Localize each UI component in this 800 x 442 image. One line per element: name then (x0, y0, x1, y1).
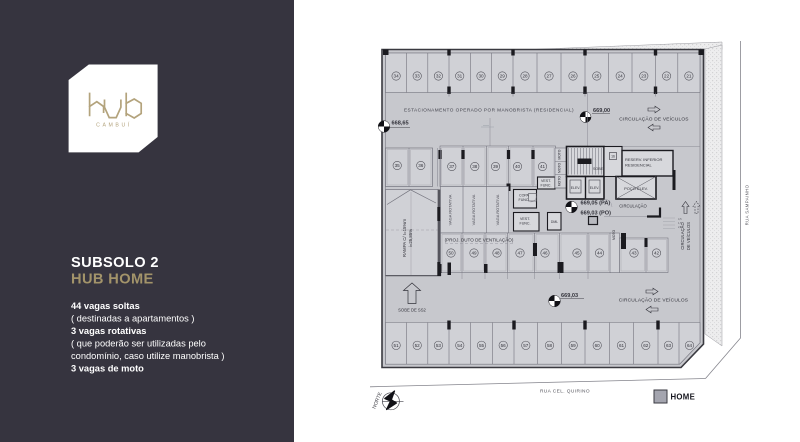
svg-text:55: 55 (479, 343, 485, 348)
svg-text:25: 25 (594, 74, 600, 79)
svg-text:RUA SAMPAINHO: RUA SAMPAINHO (745, 184, 750, 225)
svg-text:21: 21 (686, 74, 692, 79)
svg-text:39: 39 (493, 164, 499, 169)
svg-text:DE VEÍCULOS: DE VEÍCULOS (686, 222, 691, 250)
svg-text:63: 63 (666, 343, 672, 348)
svg-text:43: 43 (631, 251, 637, 256)
svg-text:34: 34 (394, 74, 400, 79)
svg-text:35: 35 (395, 163, 401, 168)
svg-text:ELEV.: ELEV. (590, 186, 600, 190)
svg-text:47: 47 (517, 251, 523, 256)
svg-text:HUB HOME: HUB HOME (71, 272, 154, 288)
svg-text:45: 45 (574, 251, 580, 256)
svg-text:56: 56 (501, 343, 507, 348)
svg-text:669,03 (PO): 669,03 (PO) (581, 211, 612, 217)
svg-text:669,03: 669,03 (561, 293, 578, 299)
svg-text:60: 60 (595, 343, 601, 348)
svg-text:CIRCULAÇÃO: CIRCULAÇÃO (680, 222, 685, 250)
svg-text:62: 62 (643, 343, 649, 348)
svg-text:POÇO ELEV.: POÇO ELEV. (624, 186, 648, 191)
svg-text:29: 29 (500, 74, 506, 79)
svg-text:SOBE DE SS2: SOBE DE SS2 (398, 308, 426, 313)
svg-text:61: 61 (619, 343, 625, 348)
svg-text:668,65: 668,65 (392, 121, 409, 127)
svg-text:30: 30 (478, 74, 484, 79)
svg-text:23: 23 (641, 74, 647, 79)
svg-text:51: 51 (394, 343, 400, 348)
svg-text:26: 26 (570, 74, 576, 79)
svg-text:4,5: 4,5 (678, 217, 682, 221)
svg-text:(PROJ. DUTO DE VENTILAÇÃO): (PROJ. DUTO DE VENTILAÇÃO) (445, 237, 514, 243)
svg-text:SOBE: SOBE (593, 167, 604, 171)
svg-text:( que poderão ser utilizadas p: ( que poderão ser utilizadas pelo (71, 339, 206, 349)
svg-text:CIRCULAÇÃO DE VEÍCULOS: CIRCULAÇÃO DE VEÍCULOS (619, 297, 688, 304)
svg-text:VAGA ROTATIVA: VAGA ROTATIVA (471, 194, 476, 225)
svg-text:VAGA ROTATIVA: VAGA ROTATIVA (495, 194, 500, 225)
svg-text:27: 27 (546, 74, 552, 79)
svg-text:36: 36 (418, 163, 424, 168)
svg-text:46: 46 (542, 251, 548, 256)
svg-text:49: 49 (471, 251, 477, 256)
svg-text:52: 52 (415, 343, 421, 348)
svg-text:COPA: COPA (519, 194, 530, 198)
svg-text:RESIDENCIAL: RESIDENCIAL (625, 163, 652, 168)
svg-text:3 vagas de moto: 3 vagas de moto (71, 364, 144, 374)
svg-text:CIRCULAÇÃO: CIRCULAÇÃO (619, 204, 647, 209)
svg-text:FUNC.: FUNC. (520, 222, 531, 226)
svg-text:i=25,85%: i=25,85% (408, 229, 413, 248)
svg-text:RESERV. INFERIOR: RESERV. INFERIOR (625, 157, 662, 162)
svg-text:VAGA ROTATIVA: VAGA ROTATIVA (448, 194, 453, 225)
svg-text:50: 50 (448, 251, 454, 256)
svg-text:22: 22 (664, 74, 670, 79)
svg-text:54: 54 (457, 343, 463, 348)
svg-text:VEST.: VEST. (520, 217, 530, 221)
svg-text:40: 40 (515, 164, 521, 169)
svg-text:CIRCULAÇÃO DE VEÍCULOS: CIRCULAÇÃO DE VEÍCULOS (619, 116, 688, 123)
svg-text:ESTACIONAMENTO OPERADO POR MAN: ESTACIONAMENTO OPERADO POR MANOBRISTA (R… (404, 108, 574, 113)
svg-text:DML: DML (551, 220, 558, 224)
svg-text:42: 42 (654, 251, 660, 256)
svg-text:57: 57 (523, 343, 529, 348)
svg-text:33: 33 (415, 74, 421, 79)
svg-text:41: 41 (540, 164, 546, 169)
svg-text:669,00: 669,00 (593, 108, 610, 114)
svg-text:64: 64 (687, 343, 693, 348)
svg-text:44 vagas soltas: 44 vagas soltas (71, 301, 140, 311)
svg-text:58: 58 (547, 343, 553, 348)
svg-text:32: 32 (436, 74, 442, 79)
svg-text:condomínio, caso utilize manob: condomínio, caso utilize manobrista ) (71, 351, 224, 361)
svg-text:44: 44 (597, 251, 603, 256)
svg-text:SUBSOLO 2: SUBSOLO 2 (71, 255, 159, 271)
svg-text:FUNC.: FUNC. (519, 198, 530, 202)
svg-text:24: 24 (618, 74, 624, 79)
svg-text:ELEV.: ELEV. (571, 186, 581, 190)
svg-text:59: 59 (571, 343, 577, 348)
svg-text:VEST.: VEST. (541, 179, 551, 183)
svg-text:MOTO: MOTO (558, 149, 562, 159)
svg-text:CAMBUÍ: CAMBUÍ (96, 121, 132, 128)
svg-text:53: 53 (436, 343, 442, 348)
svg-text:MOTO: MOTO (558, 176, 562, 186)
svg-text:16: 16 (611, 155, 615, 159)
svg-text:31: 31 (457, 74, 463, 79)
svg-text:HOME: HOME (671, 393, 696, 402)
svg-text:FUNC.: FUNC. (541, 183, 552, 187)
svg-text:37: 37 (449, 164, 455, 169)
svg-text:RUA CEL. QUIRINO: RUA CEL. QUIRINO (540, 389, 590, 395)
svg-text:RAMPA C/ I=15%m: RAMPA C/ I=15%m (402, 219, 407, 257)
svg-text:28: 28 (522, 74, 528, 79)
svg-text:MOTO: MOTO (558, 162, 562, 172)
svg-text:669,05 (PA): 669,05 (PA) (581, 201, 611, 207)
svg-text:48: 48 (494, 251, 500, 256)
svg-text:38: 38 (472, 164, 478, 169)
svg-text:MOTO: MOTO (612, 230, 616, 240)
svg-text:3 vagas rotativas: 3 vagas rotativas (71, 326, 146, 336)
svg-text:( destinadas a apartamentos ): ( destinadas a apartamentos ) (71, 314, 195, 324)
